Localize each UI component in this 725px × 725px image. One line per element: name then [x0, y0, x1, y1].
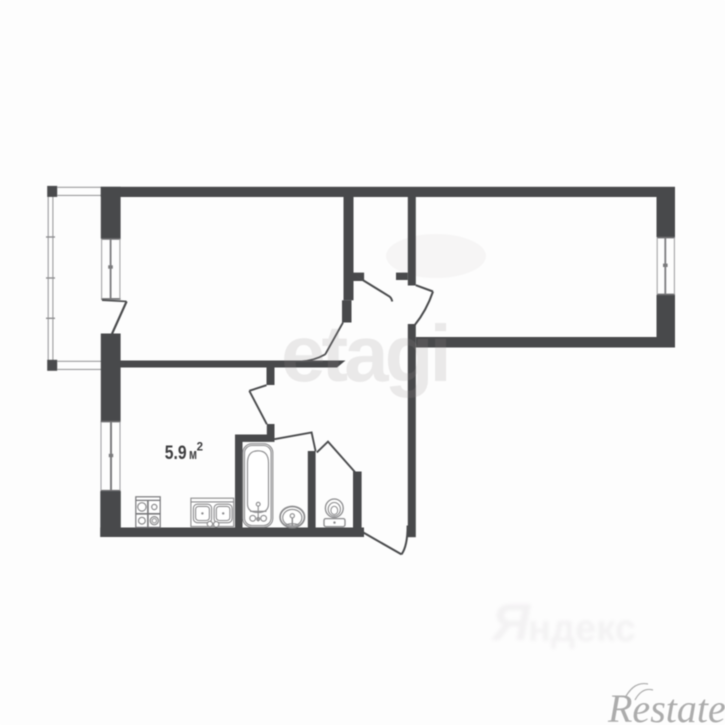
- svg-text:Я: Я: [490, 594, 531, 652]
- svg-text:ндекс: ндекс: [528, 608, 636, 650]
- svg-text:etagi: etagi: [281, 309, 448, 398]
- svg-text:2: 2: [197, 442, 203, 454]
- svg-text:5.9: 5.9: [165, 443, 187, 464]
- svg-text:Restate: Restate: [607, 686, 725, 725]
